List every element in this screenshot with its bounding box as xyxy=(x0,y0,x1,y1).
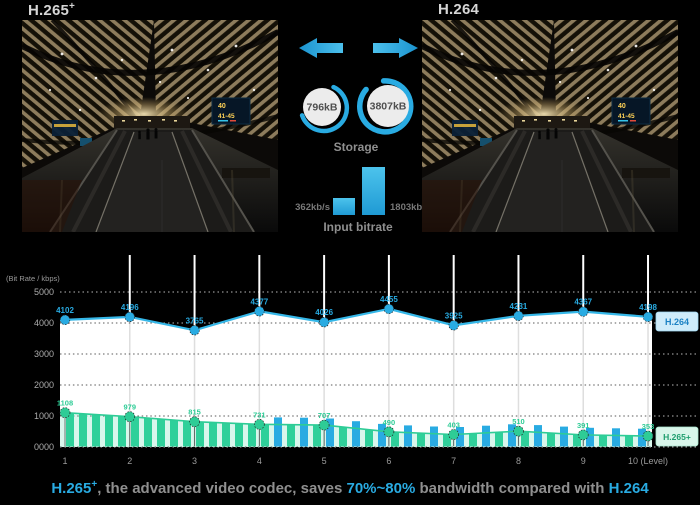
svg-text:3925: 3925 xyxy=(445,311,463,320)
svg-text:3000: 3000 xyxy=(34,349,54,359)
svg-text:2000: 2000 xyxy=(34,380,54,390)
svg-text:403: 403 xyxy=(447,421,460,430)
bitrate-value-right: 1803kb/s xyxy=(390,202,422,213)
x-tick-labels: 12345678910 (Level) xyxy=(62,456,668,466)
svg-text:707: 707 xyxy=(318,411,331,420)
h265plus-title-text: H.265 xyxy=(28,2,69,19)
svg-text:353: 353 xyxy=(642,422,655,431)
storage-value-left: 796kB xyxy=(307,102,338,114)
storage-label: Storage xyxy=(334,140,379,154)
caption-highlight: 70%~80% xyxy=(346,480,415,497)
svg-text:8: 8 xyxy=(516,456,521,466)
infographic-stage: H.265+ H.264 xyxy=(0,0,700,505)
svg-text:4196: 4196 xyxy=(121,303,139,312)
h264-tag: H.264 xyxy=(656,312,698,331)
arrow-left-icon xyxy=(299,38,343,58)
svg-text:4026: 4026 xyxy=(315,308,333,317)
svg-text:41-45: 41-45 xyxy=(618,113,635,120)
caption-codec2: H.264 xyxy=(609,480,649,497)
caption-codec1: H.265 xyxy=(51,480,91,497)
bitrate-label: Input bitrate xyxy=(323,220,393,234)
bitrate-bar-small xyxy=(333,198,355,215)
svg-text:9: 9 xyxy=(581,456,586,466)
svg-text:731: 731 xyxy=(253,410,266,419)
svg-text:3: 3 xyxy=(192,456,197,466)
h264-title: H.264 xyxy=(438,1,479,18)
storage-circle-right: 3807kB xyxy=(360,81,411,132)
h265plus-sample-photo: 40 41-45 xyxy=(22,20,278,232)
storage-circle-left: 796kB xyxy=(302,87,347,131)
h265plus-tag: H.265+ xyxy=(656,427,698,446)
svg-text:979: 979 xyxy=(124,403,137,412)
caption-middle2: bandwidth compared with xyxy=(415,480,608,497)
caption-middle1: , the advanced video codec, saves xyxy=(97,480,346,497)
svg-text:0000: 0000 xyxy=(34,442,54,452)
bitrate-chart-svg: 4102419637654377402644553925423143674198… xyxy=(0,250,700,478)
svg-text:40: 40 xyxy=(218,103,226,110)
h265plus-title: H.265+ xyxy=(28,1,75,19)
arrow-right-icon xyxy=(373,38,418,58)
svg-text:4102: 4102 xyxy=(56,306,74,315)
svg-text:4455: 4455 xyxy=(380,295,398,304)
svg-text:4231: 4231 xyxy=(510,302,528,311)
svg-text:1000: 1000 xyxy=(34,411,54,421)
svg-text:4000: 4000 xyxy=(34,318,54,328)
terminal-photo-art: 40 41-45 xyxy=(22,20,278,232)
svg-text:H.264: H.264 xyxy=(665,317,689,327)
svg-text:6: 6 xyxy=(386,456,391,466)
storage-value-right: 3807kB xyxy=(370,101,407,113)
h264-sample-photo: 40 41-45 xyxy=(422,20,678,232)
h264-title-text: H.264 xyxy=(438,1,479,18)
bitrate-value-left: 362kb/s xyxy=(295,202,330,213)
svg-text:7: 7 xyxy=(451,456,456,466)
comparison-panel: 796kB 3807kB Storage 362kb/s 1803kb/s In… xyxy=(278,20,422,245)
gate-sign: 40 41-45 xyxy=(612,98,650,124)
svg-text:5: 5 xyxy=(322,456,327,466)
caption: H.265+, the advanced video codec, saves … xyxy=(0,479,700,497)
svg-text:1: 1 xyxy=(62,456,67,466)
svg-text:4367: 4367 xyxy=(574,298,592,307)
svg-text:4198: 4198 xyxy=(639,303,657,312)
y-axis-title: (Bit Rate / kbps) xyxy=(6,274,60,283)
y-tick-labels: 500040003000200010000000 xyxy=(34,287,54,452)
bitrate-bar-large xyxy=(362,167,385,215)
svg-text:4377: 4377 xyxy=(250,297,268,306)
svg-text:4: 4 xyxy=(257,456,262,466)
svg-text:815: 815 xyxy=(188,408,201,417)
svg-text:10 (Level): 10 (Level) xyxy=(628,456,668,466)
terminal-photo-art: 40 41-45 xyxy=(422,20,678,232)
h265plus-title-sup: + xyxy=(69,1,75,12)
svg-text:H.265+: H.265+ xyxy=(663,432,691,442)
svg-text:41-45: 41-45 xyxy=(218,113,235,120)
bitrate-chart: 4102419637654377402644553925423143674198… xyxy=(0,250,700,478)
svg-text:391: 391 xyxy=(577,421,590,430)
svg-text:5000: 5000 xyxy=(34,287,54,297)
svg-text:510: 510 xyxy=(512,417,525,426)
svg-text:3765: 3765 xyxy=(186,316,204,325)
svg-text:490: 490 xyxy=(383,418,396,427)
svg-text:1108: 1108 xyxy=(57,399,73,408)
gate-sign: 40 41-45 xyxy=(212,98,250,124)
svg-text:2: 2 xyxy=(127,456,132,466)
svg-text:40: 40 xyxy=(618,103,626,110)
